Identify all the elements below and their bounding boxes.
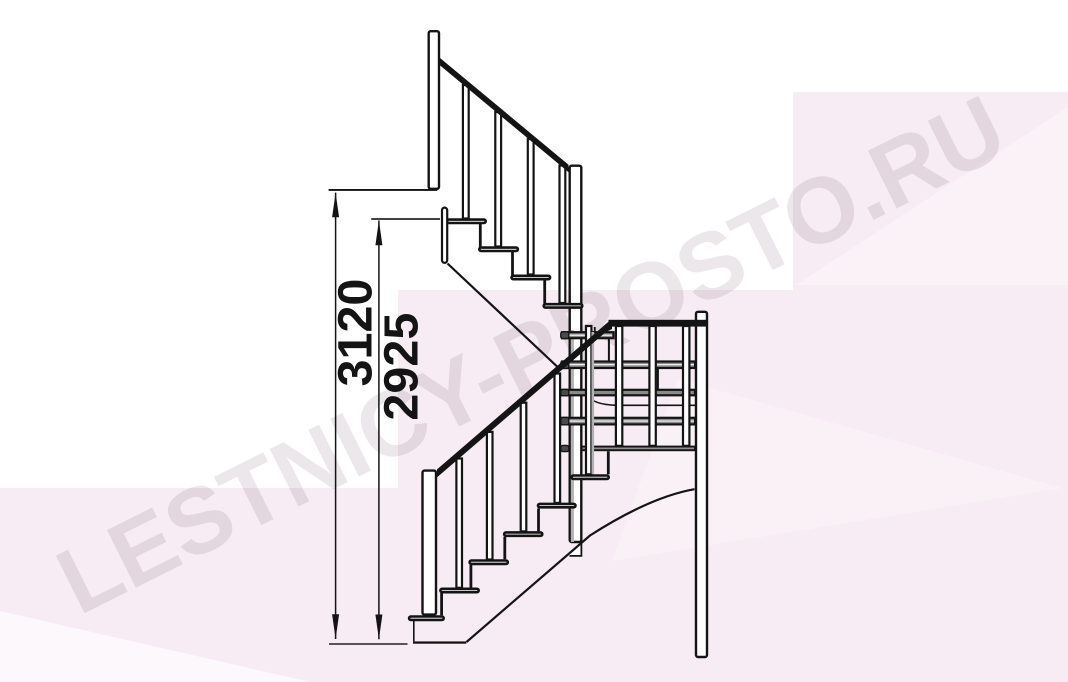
svg-text:2925: 2925: [375, 313, 429, 421]
